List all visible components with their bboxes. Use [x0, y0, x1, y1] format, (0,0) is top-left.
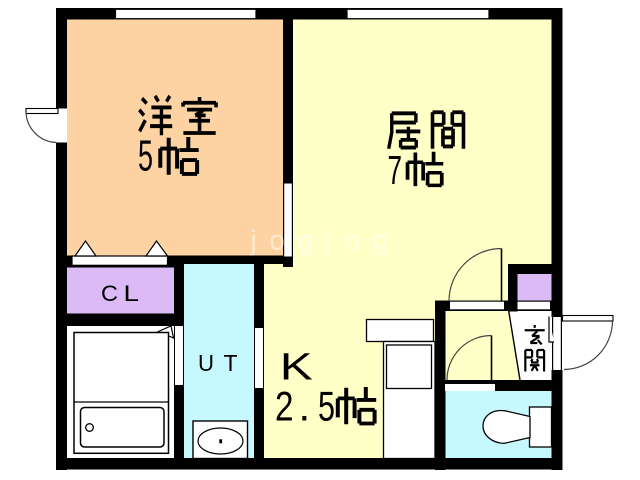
svg-text:U: U: [198, 350, 214, 376]
svg-text:7: 7: [388, 147, 403, 193]
svg-text:2: 2: [275, 383, 294, 430]
svg-text:L: L: [124, 281, 140, 306]
svg-text:5: 5: [318, 383, 335, 430]
svg-text:5: 5: [138, 132, 153, 181]
svg-text:.: .: [299, 383, 311, 430]
svg-text:jogjog: jogjog: [250, 225, 401, 256]
svg-text:T: T: [224, 350, 238, 376]
svg-text:C: C: [101, 281, 118, 306]
